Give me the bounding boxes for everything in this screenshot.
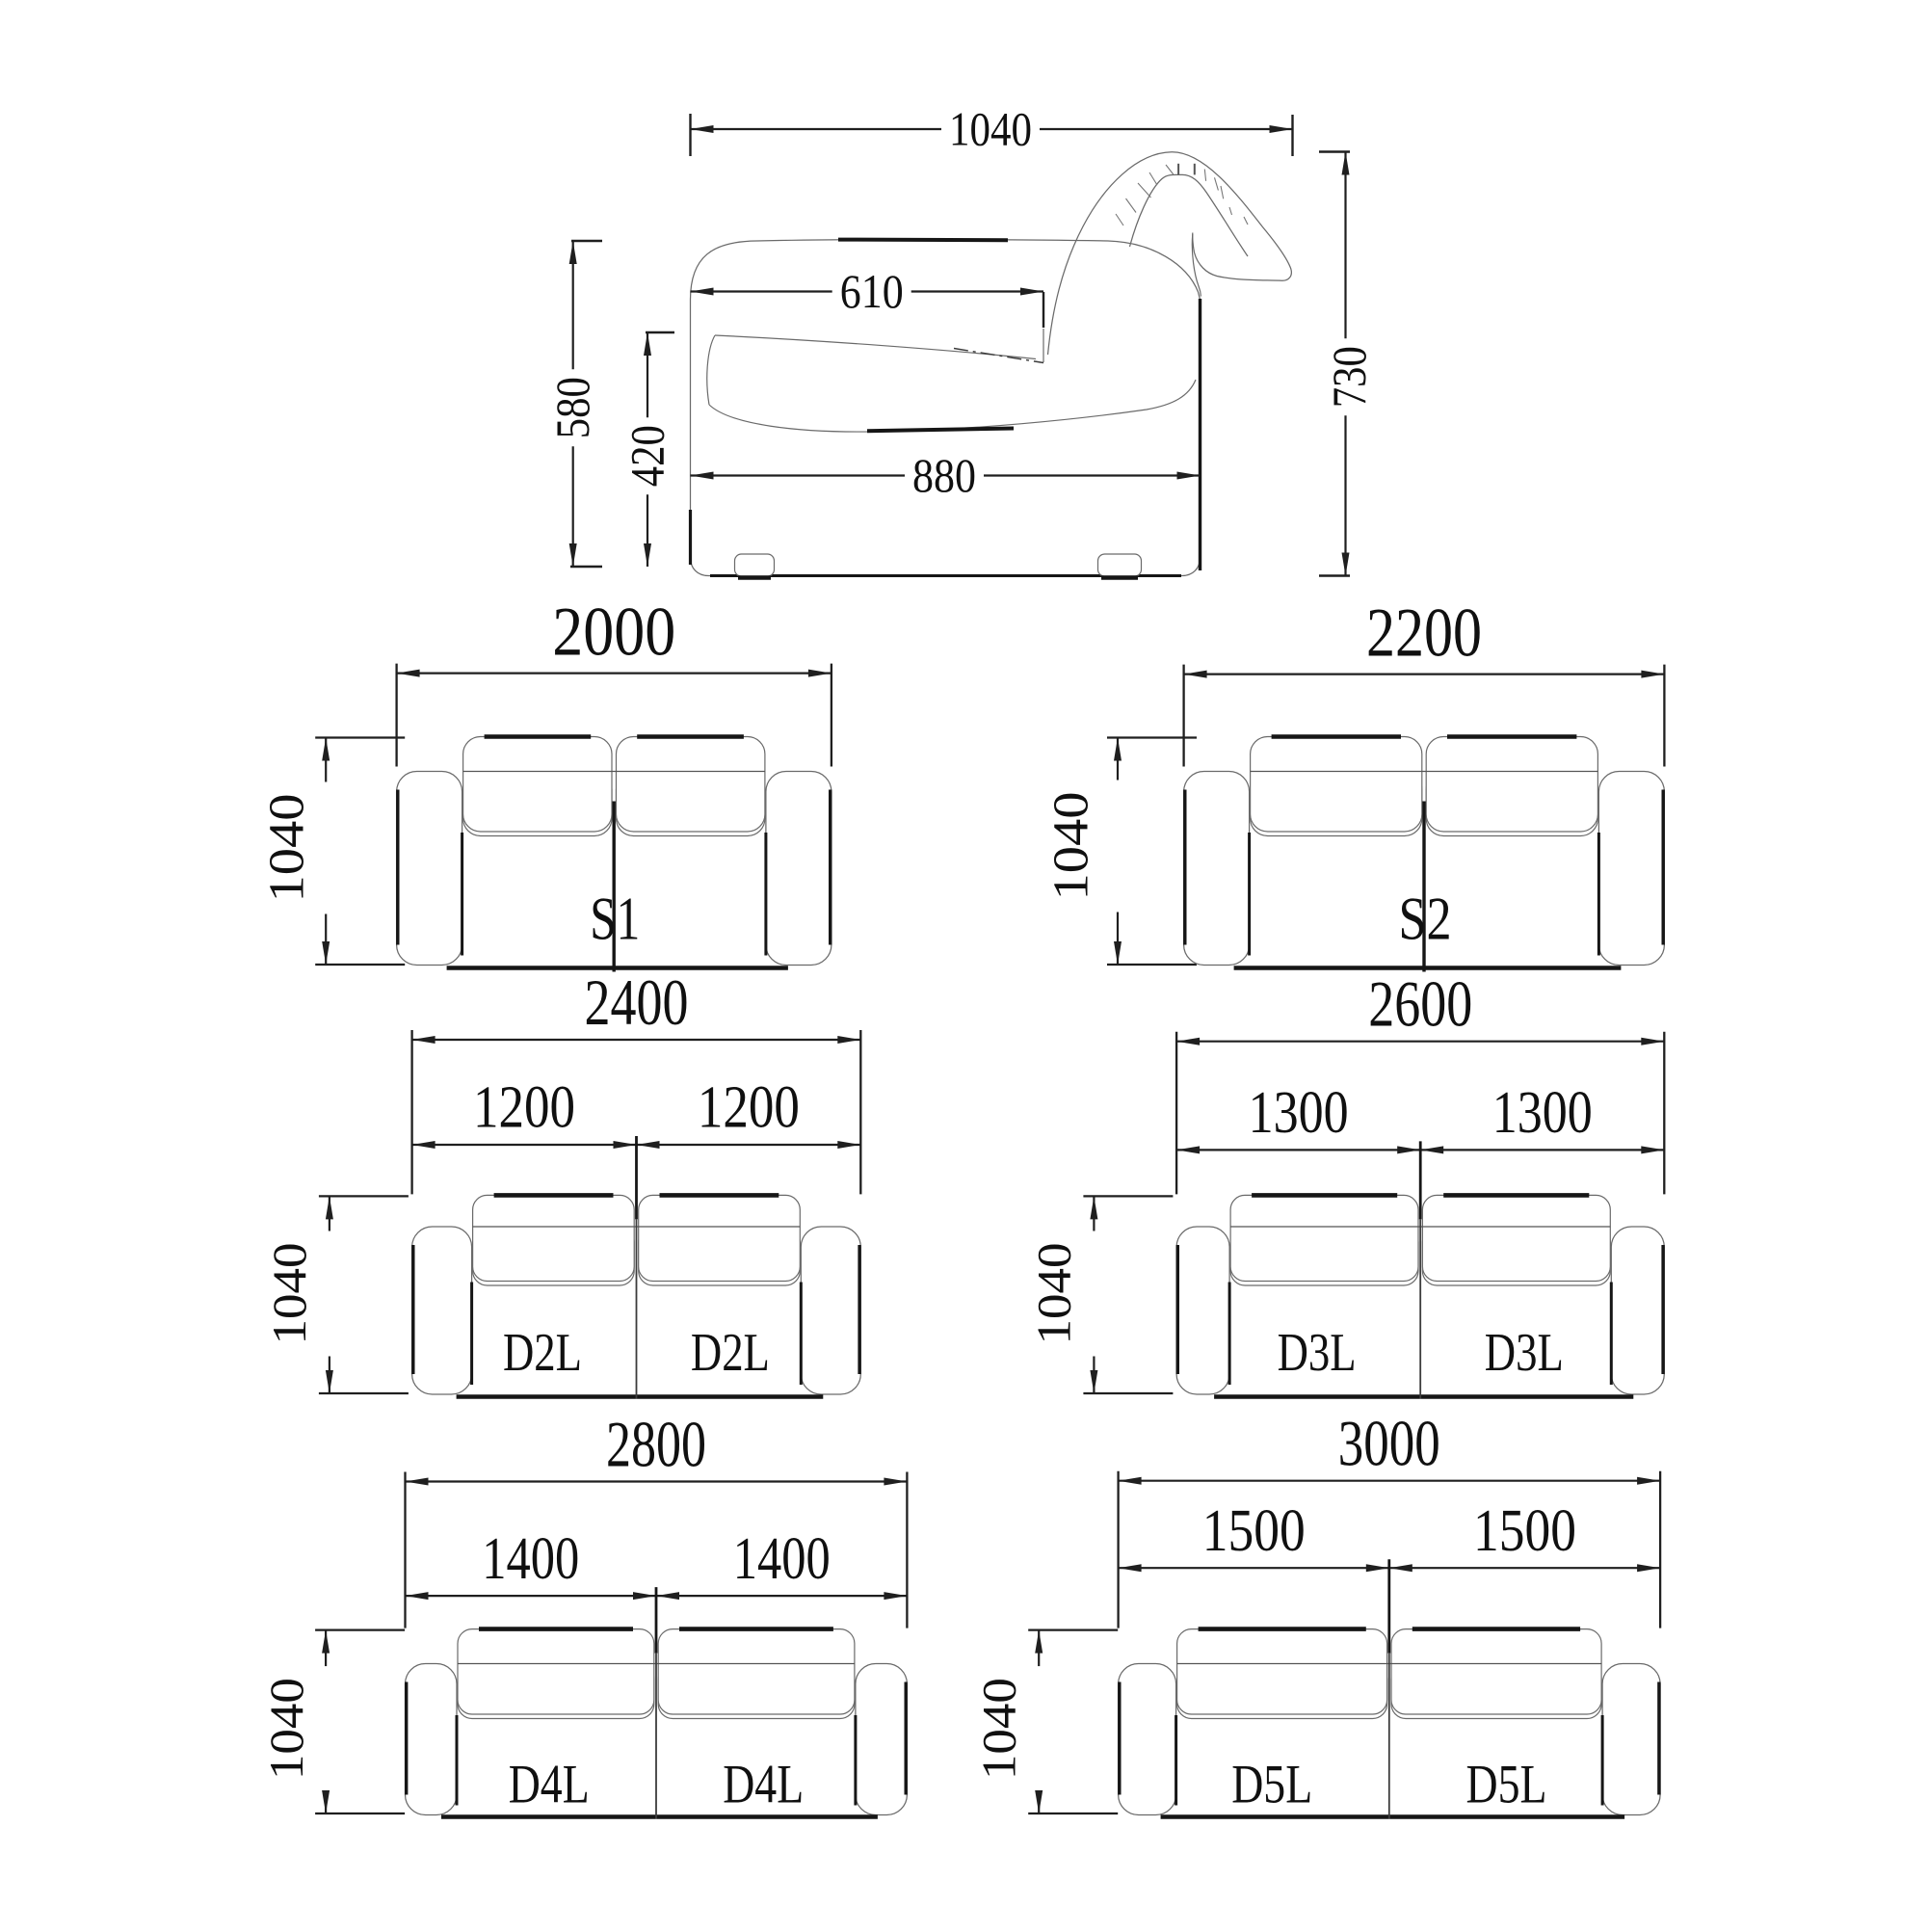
- svg-text:1300: 1300: [1249, 1080, 1349, 1146]
- svg-text:D2L: D2L: [503, 1323, 582, 1383]
- svg-text:580: 580: [545, 377, 599, 438]
- svg-text:1400: 1400: [482, 1526, 579, 1592]
- svg-text:1400: 1400: [733, 1526, 831, 1592]
- svg-text:1040: 1040: [949, 102, 1032, 156]
- svg-text:1040: 1040: [262, 1243, 316, 1345]
- svg-text:1500: 1500: [1202, 1498, 1306, 1564]
- svg-text:D3L: D3L: [1485, 1323, 1564, 1383]
- svg-text:D4L: D4L: [509, 1755, 590, 1815]
- svg-text:2200: 2200: [1366, 594, 1482, 671]
- svg-text:D5L: D5L: [1231, 1755, 1312, 1815]
- svg-text:1300: 1300: [1492, 1080, 1593, 1146]
- svg-text:1200: 1200: [698, 1075, 800, 1141]
- svg-text:610: 610: [840, 264, 904, 318]
- svg-text:880: 880: [912, 448, 976, 502]
- svg-text:1040: 1040: [1044, 792, 1099, 901]
- svg-text:S1: S1: [590, 886, 640, 953]
- svg-text:D3L: D3L: [1278, 1323, 1357, 1383]
- svg-text:1040: 1040: [972, 1678, 1026, 1780]
- svg-text:D5L: D5L: [1466, 1755, 1547, 1815]
- svg-text:1200: 1200: [473, 1075, 575, 1141]
- svg-text:D4L: D4L: [723, 1755, 804, 1815]
- svg-text:3000: 3000: [1338, 1407, 1440, 1480]
- svg-text:1040: 1040: [1027, 1243, 1081, 1345]
- svg-text:1040: 1040: [260, 794, 315, 903]
- svg-text:D2L: D2L: [691, 1323, 770, 1383]
- svg-text:2800: 2800: [606, 1408, 706, 1481]
- svg-text:2400: 2400: [585, 966, 689, 1039]
- svg-text:2000: 2000: [552, 593, 675, 670]
- svg-text:420: 420: [620, 425, 674, 487]
- svg-text:1040: 1040: [259, 1678, 313, 1780]
- svg-text:730: 730: [1322, 346, 1376, 408]
- svg-text:S2: S2: [1399, 886, 1452, 953]
- svg-text:2600: 2600: [1368, 967, 1472, 1041]
- svg-text:1500: 1500: [1473, 1498, 1576, 1564]
